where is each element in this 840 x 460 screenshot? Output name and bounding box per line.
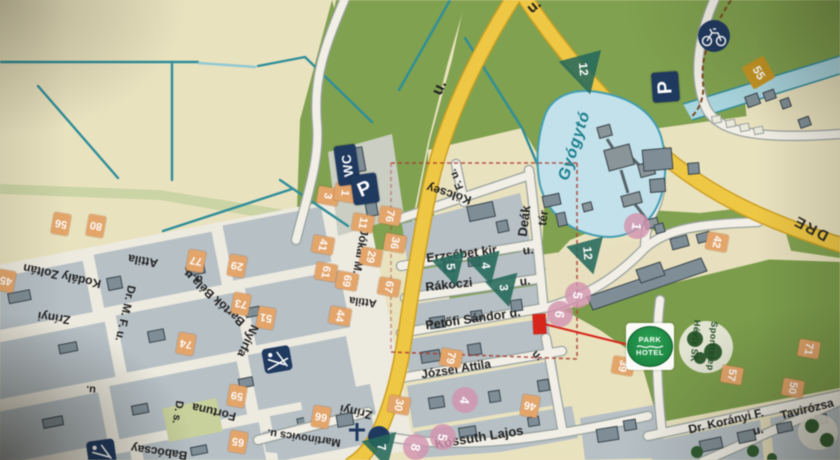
street-label: DRE xyxy=(791,213,831,244)
poi-square: 45 xyxy=(0,269,16,293)
street-label: tér xyxy=(536,210,550,227)
poi-square-number: 3 xyxy=(322,192,335,200)
poi-square: 51 xyxy=(256,306,276,330)
poi-circle: 1 xyxy=(624,213,650,239)
map-photo: u.u.KölcseyF. u.DeáktérErzsébet kir.u.Rá… xyxy=(0,0,840,460)
poi-square: 57 xyxy=(720,365,744,385)
poi-square: 30 xyxy=(387,395,411,415)
poi-square-number: 71 xyxy=(802,342,816,356)
poi-square: 56 xyxy=(51,212,71,236)
street-label: u. xyxy=(430,78,450,97)
poi-square-number: 29 xyxy=(364,250,378,264)
street-label: Attila xyxy=(127,252,159,269)
poi-square: 80 xyxy=(86,214,106,238)
wc-sign-label: WC xyxy=(338,153,356,178)
street-label: Babócsay xyxy=(130,442,188,460)
street-label: u. xyxy=(524,0,544,16)
gold-square-number: 55 xyxy=(749,63,768,82)
poi-square-number: 57 xyxy=(725,368,739,382)
poi-square-number: 65 xyxy=(231,435,245,449)
poi-circle: 4 xyxy=(452,387,478,413)
poi-square-number: 61 xyxy=(319,265,333,279)
street-label: Zrínyi xyxy=(37,310,71,326)
location-marker xyxy=(532,314,546,335)
street-label: Attila xyxy=(349,294,378,308)
poi-square: 29 xyxy=(359,247,383,267)
poi-circle: 8 xyxy=(403,434,429,460)
poi-square-number: 30 xyxy=(392,398,406,412)
poi-circle-number: 4 xyxy=(457,395,473,405)
poi-circle-number: 8 xyxy=(408,442,424,452)
street-label: Martinovics u. xyxy=(267,426,342,447)
poi-square: 71 xyxy=(797,339,821,359)
poi-triangle-number: 5 xyxy=(443,262,458,270)
poi-square: 77 xyxy=(186,249,206,273)
poi-square: 65 xyxy=(228,430,248,454)
poi-square-number: 59 xyxy=(230,389,244,403)
street-label: u. xyxy=(522,243,534,256)
parking-sign-lower: P xyxy=(350,172,380,205)
street-label: Deák xyxy=(516,205,533,237)
poi-circle-number: 5 xyxy=(435,432,451,442)
poi-square-number: 80 xyxy=(89,219,103,233)
poi-square: 29 xyxy=(227,254,247,278)
poi-square-number: 50 xyxy=(786,381,800,395)
poi-square: 73 xyxy=(231,292,251,316)
street-label: u. xyxy=(86,383,97,395)
poi-square: 59 xyxy=(227,384,247,408)
poi-square: 66 xyxy=(311,405,331,429)
street-label: Petőfi Sándor u. xyxy=(425,306,522,332)
poi-square: 41 xyxy=(311,235,335,255)
street-label: Tavirózsa xyxy=(779,397,835,422)
poi-square: 44 xyxy=(328,306,352,326)
poi-circle-number: 1 xyxy=(629,221,645,231)
poi-triangle: 12 xyxy=(566,237,612,280)
poi-square-number: 67 xyxy=(382,280,396,294)
poi-triangle-number: 12 xyxy=(576,62,591,77)
poi-square-number: 45 xyxy=(0,274,13,288)
poi-square: 61 xyxy=(314,262,338,282)
poi-square: 67 xyxy=(377,277,401,297)
poi-square: 69 xyxy=(335,271,359,291)
lake-label: Gyógytó xyxy=(556,109,593,182)
poi-triangle-number: 12 xyxy=(580,245,595,260)
poi-square-number: 69 xyxy=(340,274,354,288)
poi-square-number: 29 xyxy=(230,259,244,273)
poi-circle-number: 5 xyxy=(570,290,586,300)
street-label: D. s. xyxy=(170,400,185,425)
poi-square-number: 74 xyxy=(179,337,193,351)
poi-markers-layer: u.u.KölcseyF. u.DeáktérErzsébet kir.u.Rá… xyxy=(0,0,840,460)
poi-square: 46 xyxy=(520,394,540,418)
poi-circle: 5 xyxy=(430,424,456,450)
poi-square: 36 xyxy=(383,233,407,253)
poi-square: 79 xyxy=(439,348,463,368)
poi-square-number: 36 xyxy=(388,236,402,250)
street-label: u. xyxy=(530,349,545,364)
street-label: Zrínyi xyxy=(339,403,373,422)
parking-sign-label: P xyxy=(354,176,375,202)
poi-square-number: 77 xyxy=(189,254,203,268)
poi-square-number: 76 xyxy=(383,209,397,223)
street-label: Kodály Zoltán xyxy=(22,262,102,290)
poi-triangle-number: 4 xyxy=(478,261,493,269)
poi-square-number: 79 xyxy=(444,351,458,365)
poi-square-number: 51 xyxy=(259,311,273,325)
poi-square: 76 xyxy=(378,206,402,226)
street-label: Nyírfa xyxy=(235,323,260,359)
poi-square-number: 44 xyxy=(333,309,347,323)
street-label: Sporttelep xyxy=(705,321,718,371)
street-label: u. xyxy=(751,423,764,437)
street-label: Hévíz SK xyxy=(689,319,702,362)
poi-square-number: 56 xyxy=(54,217,68,231)
poi-square-number: 46 xyxy=(523,399,537,413)
poi-square: 42 xyxy=(705,232,729,252)
logo-line2: HOTEL xyxy=(636,349,664,357)
parking-sign-label: P xyxy=(654,80,678,95)
poi-square-number: 66 xyxy=(314,410,328,424)
poi-square: 74 xyxy=(176,332,196,356)
poi-circle: 6 xyxy=(547,301,573,327)
poi-square-number: 73 xyxy=(234,297,248,311)
poi-square-number: 11 xyxy=(356,216,370,230)
poi-triangle: 7 xyxy=(361,432,404,460)
poi-square: 50 xyxy=(781,378,805,398)
poi-circle-number: 6 xyxy=(552,309,568,319)
park-hotel-logo-oval: PARK HOTEL xyxy=(627,326,673,367)
poi-square-number: 42 xyxy=(710,235,724,249)
park-hotel-logo: PARK HOTEL xyxy=(626,323,674,370)
poi-triangle-number: 3 xyxy=(496,283,511,291)
poi-triangle-number: 7 xyxy=(374,443,389,451)
poi-square-number: 41 xyxy=(316,238,330,252)
poi-square-number: 1 xyxy=(339,189,352,197)
poi-square: 11 xyxy=(351,213,375,233)
poi-triangle: 12 xyxy=(559,50,612,100)
parking-sign-upper: P xyxy=(651,71,680,103)
street-label: Dr. M. F. u. xyxy=(112,284,136,342)
